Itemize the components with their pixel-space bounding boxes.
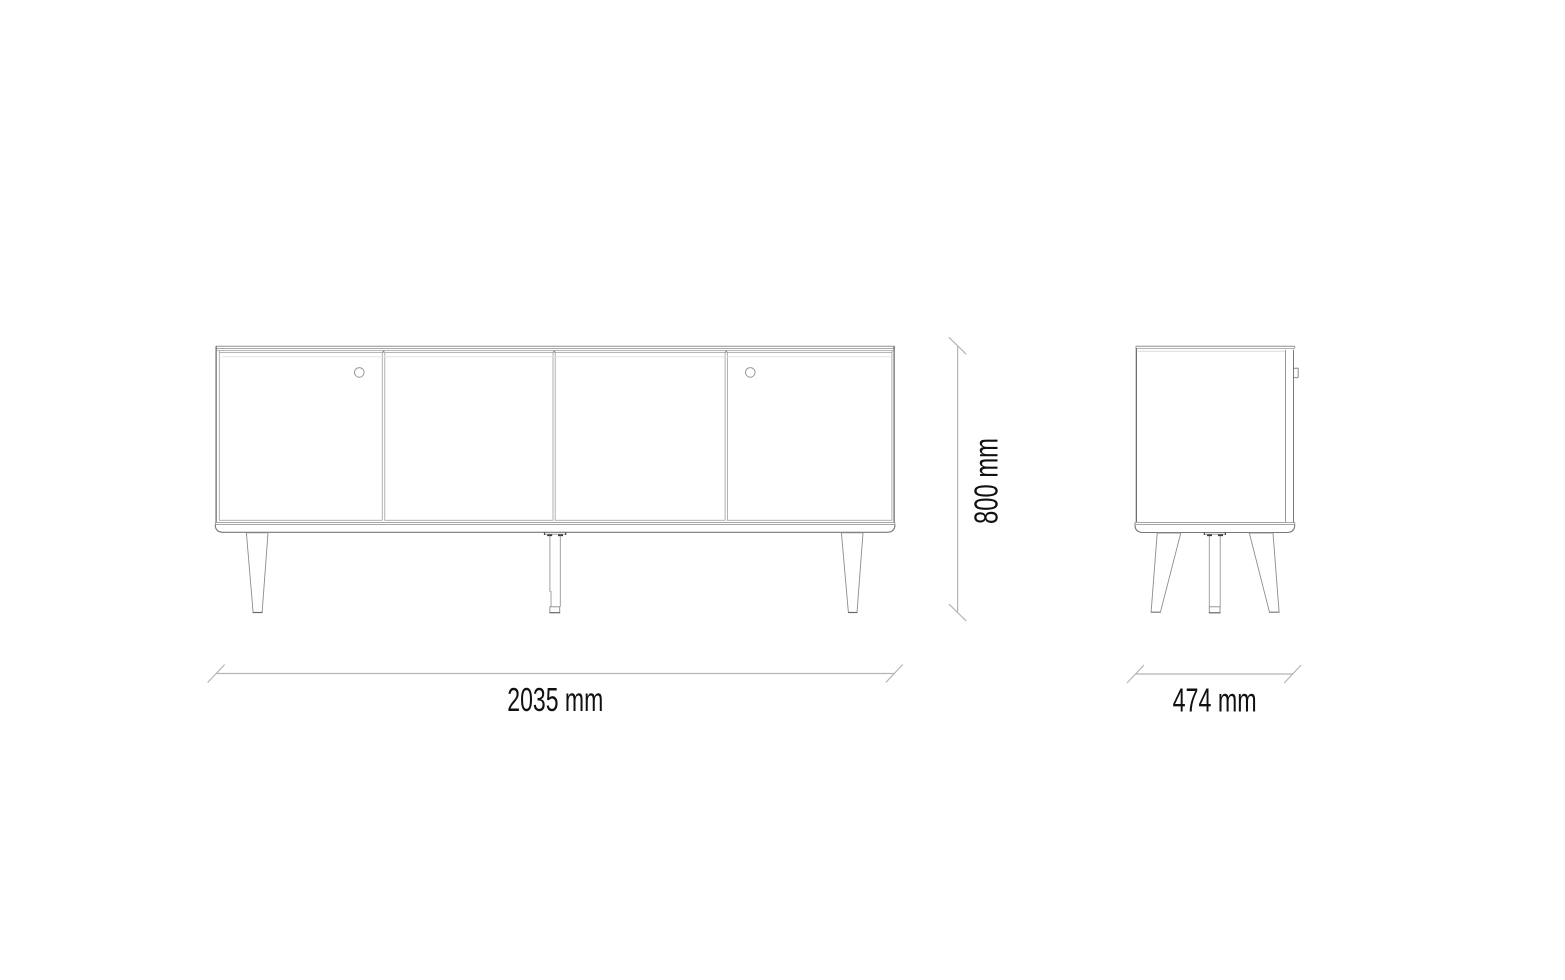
svg-text:2035 mm: 2035 mm [507,681,603,718]
svg-text:474 mm: 474 mm [1173,682,1257,719]
svg-text:800 mm: 800 mm [968,438,1005,524]
